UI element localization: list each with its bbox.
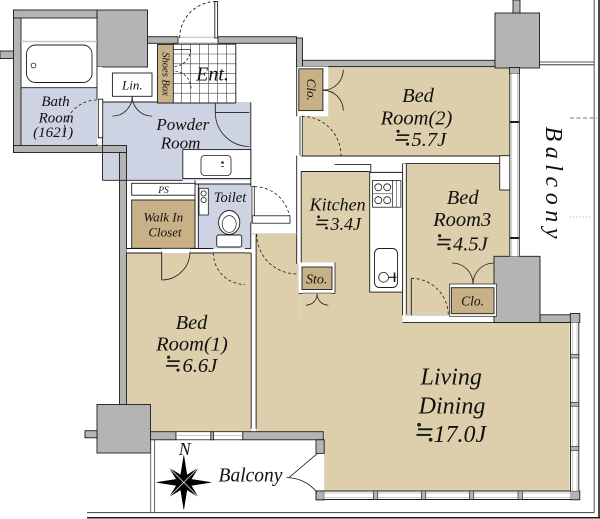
svg-text:Bath: Bath [41,94,69,110]
svg-text:(1621): (1621) [33,125,73,141]
svg-text:Room3: Room3 [432,209,491,231]
svg-text:Clo.: Clo. [461,294,484,309]
svg-text:Kitchen: Kitchen [309,195,366,215]
svg-text:Living: Living [420,365,482,391]
svg-text:Walk In: Walk In [143,210,183,225]
svg-text:Sto.: Sto. [306,273,327,288]
svg-text:Bed: Bed [402,85,435,107]
svg-text:Closet: Closet [148,225,182,240]
svg-text:PS: PS [157,186,169,196]
svg-text:Balcony: Balcony [219,466,283,487]
svg-text:N: N [178,439,192,459]
svg-text:Clo.: Clo. [304,79,319,101]
svg-text:6.6J: 6.6J [183,355,219,377]
svg-text:5.7J: 5.7J [412,129,448,151]
svg-text:Bed: Bed [176,312,209,334]
svg-text:Bed: Bed [447,187,480,209]
svg-text:Lin.: Lin. [121,78,143,93]
svg-text:Room: Room [160,133,201,152]
svg-text:3.4J: 3.4J [330,214,363,234]
svg-text:Powder: Powder [155,115,209,134]
svg-text:4.5J: 4.5J [453,234,489,256]
svg-text:Ent.: Ent. [195,64,229,86]
svg-text:Room: Room [38,110,74,126]
svg-text:Room(2): Room(2) [380,108,453,130]
svg-text:Dining: Dining [418,394,486,420]
svg-text:Toilet: Toilet [214,190,247,206]
svg-text:Shoes Box: Shoes Box [159,52,170,96]
svg-text:Room(1): Room(1) [155,334,228,356]
svg-text:17.0J: 17.0J [434,422,488,448]
